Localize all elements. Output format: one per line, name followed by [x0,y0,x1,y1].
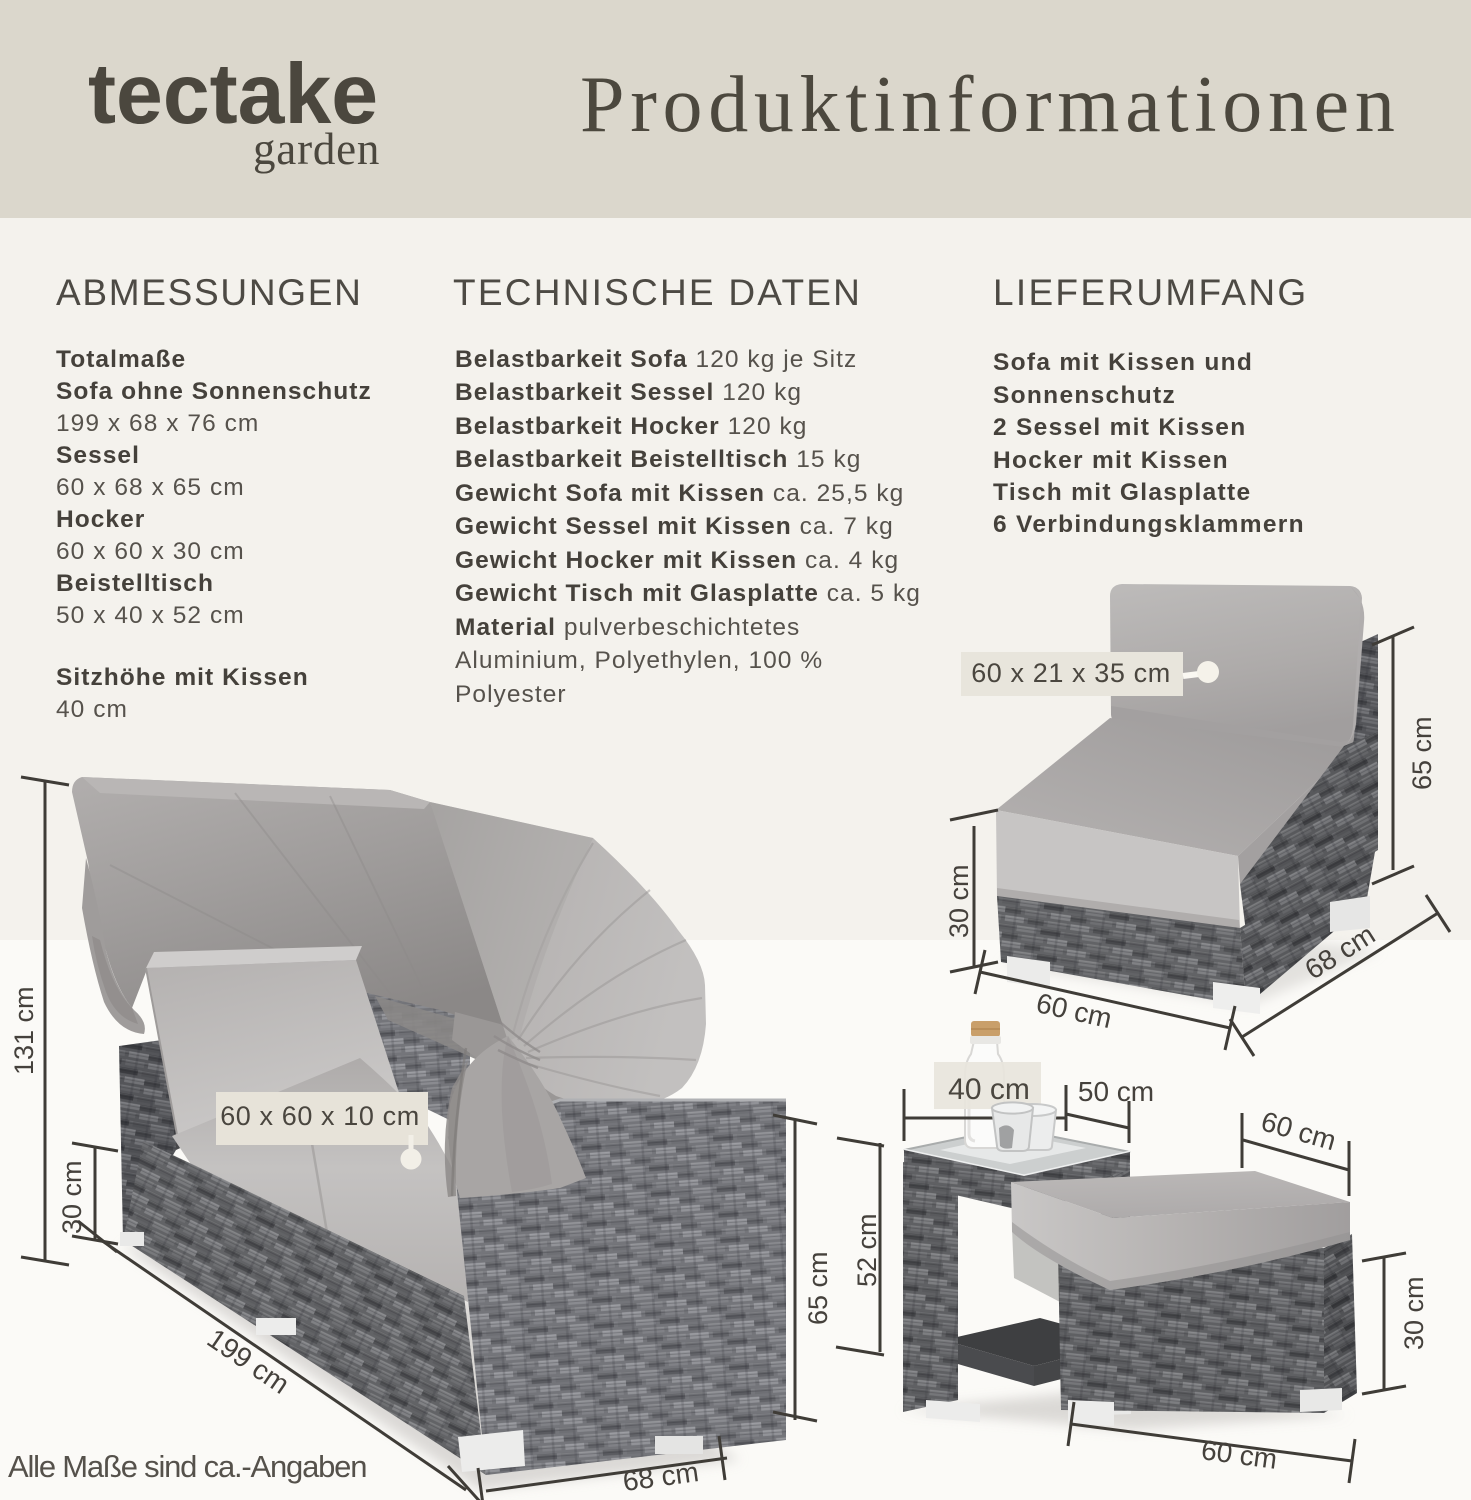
svg-text:50 cm: 50 cm [1078,1076,1154,1107]
svg-text:65 cm: 65 cm [1407,716,1437,790]
svg-text:60 cm: 60 cm [1199,1434,1279,1475]
svg-text:30 cm: 30 cm [944,864,974,938]
svg-text:40 cm: 40 cm [948,1073,1030,1106]
svg-text:52 cm: 52 cm [852,1213,882,1287]
svg-text:131 cm: 131 cm [9,986,39,1075]
svg-text:60 x 21 x 35 cm: 60 x 21 x 35 cm [971,658,1171,688]
svg-text:30 cm: 30 cm [1399,1276,1429,1350]
svg-text:60 x 60 x 10 cm: 60 x 60 x 10 cm [220,1101,420,1131]
